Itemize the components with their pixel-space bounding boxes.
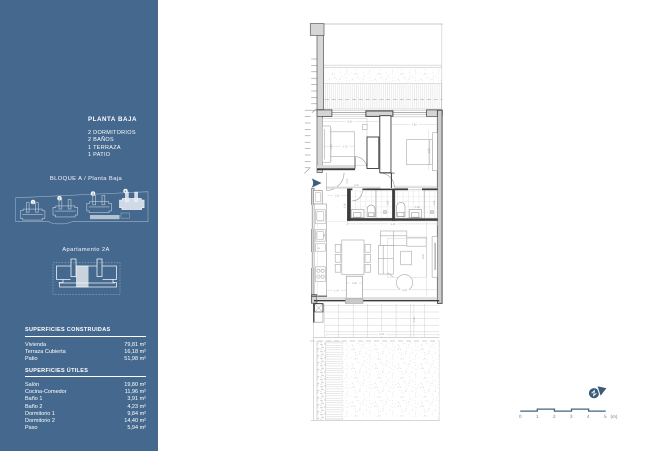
svg-text:5.30: 5.30 — [348, 121, 353, 124]
svg-text:6.40: 6.40 — [402, 289, 407, 292]
svg-text:3.00: 3.00 — [354, 184, 359, 187]
svg-text:2.50: 2.50 — [346, 178, 349, 183]
svg-text:4.50: 4.50 — [422, 253, 425, 258]
svg-text:0: 0 — [519, 414, 522, 419]
svg-text:5.30: 5.30 — [391, 223, 396, 226]
svg-text:2.80: 2.80 — [412, 124, 417, 127]
svg-text:1.60: 1.60 — [387, 200, 390, 205]
svg-text:(m): (m) — [611, 414, 618, 419]
svg-text:3: 3 — [570, 414, 573, 419]
svg-text:4: 4 — [587, 414, 590, 419]
svg-text:2.65: 2.65 — [415, 206, 420, 209]
svg-text:0.96: 0.96 — [352, 282, 357, 285]
svg-text:2.70: 2.70 — [343, 145, 348, 148]
svg-text:2: 2 — [553, 414, 556, 419]
svg-text:1.20: 1.20 — [335, 195, 340, 198]
svg-text:5: 5 — [604, 414, 607, 419]
svg-text:6.00: 6.00 — [379, 333, 384, 336]
svg-text:4.20: 4.20 — [427, 148, 430, 153]
svg-text:1: 1 — [536, 414, 539, 419]
svg-text:1.60: 1.60 — [433, 200, 436, 205]
svg-text:1.90: 1.90 — [343, 203, 346, 208]
svg-text:1.20: 1.20 — [334, 289, 339, 292]
svg-text:3.00: 3.00 — [330, 144, 333, 149]
svg-text:2.40: 2.40 — [413, 316, 416, 321]
